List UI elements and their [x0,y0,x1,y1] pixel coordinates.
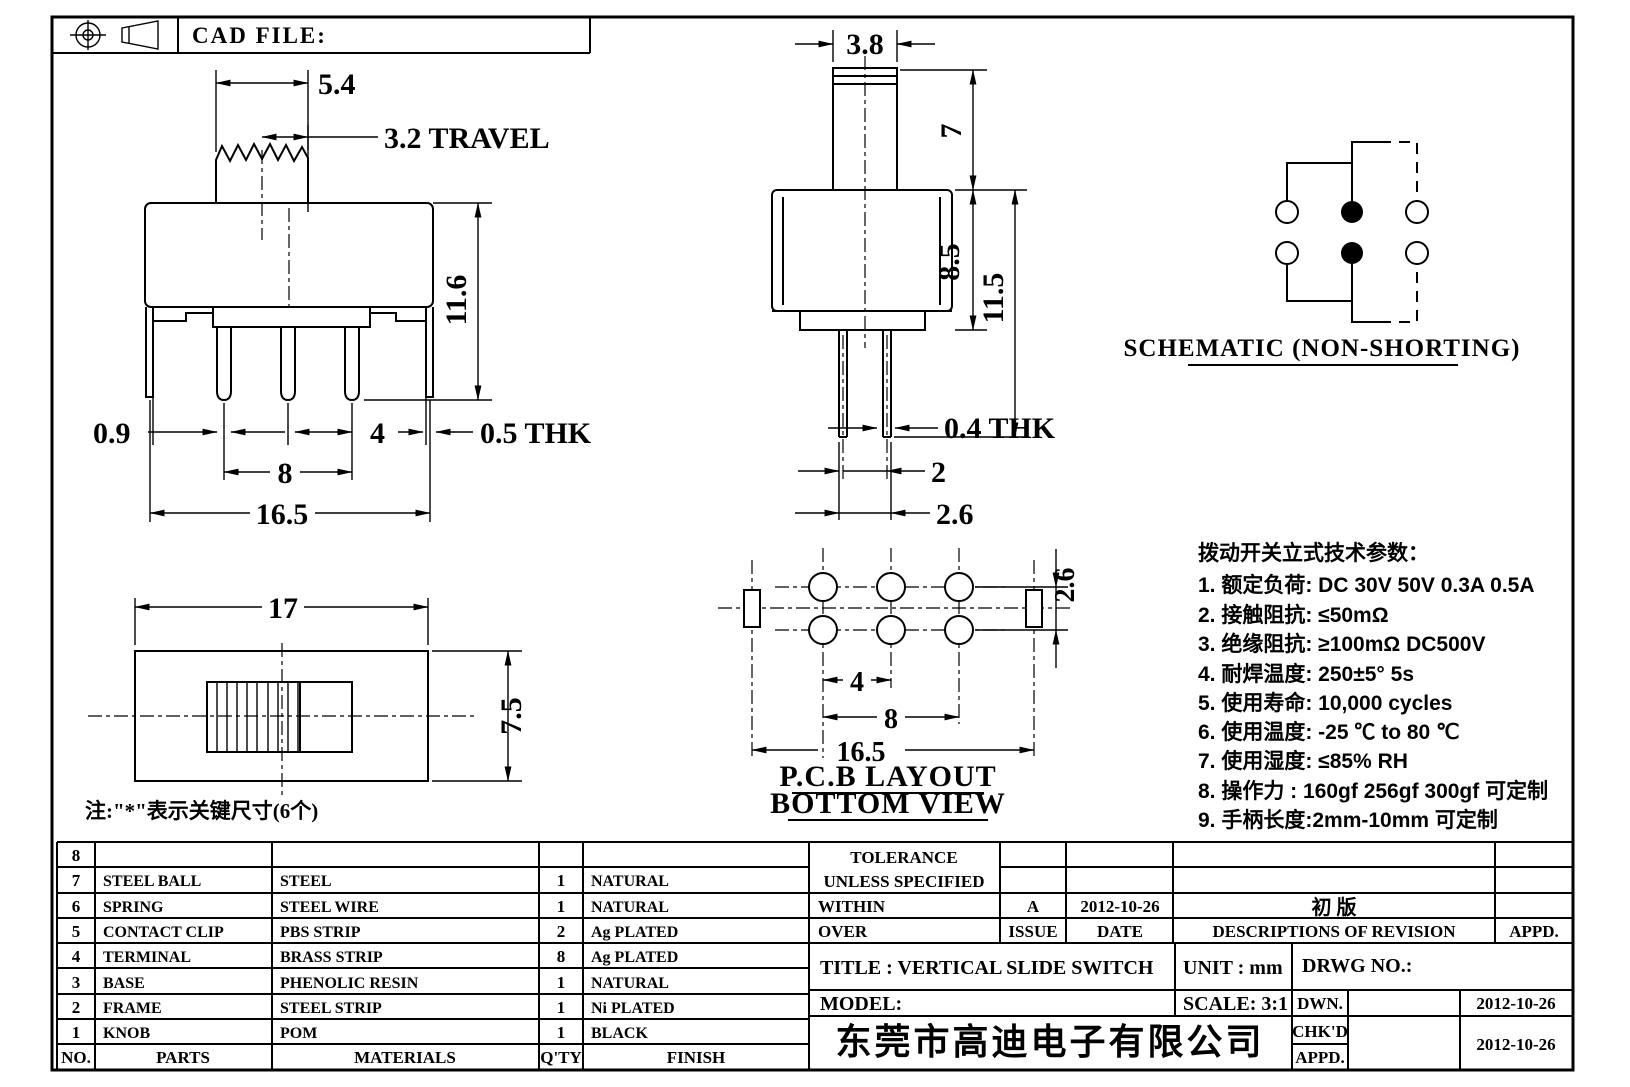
side-view [772,56,952,482]
part-finish: Ni PLATED [591,1000,675,1017]
dim-0-5-thk: 0.5 THK [480,417,592,450]
part-no: 7 [72,871,81,890]
part-qty: 1 [557,871,566,890]
spec-item-7: 7. 使用湿度: ≤85% RH [1198,749,1408,773]
dim-0-4-thk: 0.4 THK [944,412,1056,445]
top-view [88,643,478,795]
side-view-dimensions: 3.8 7 8.5 11.5 0.4 THK 2 2.6 [795,28,1056,531]
dim-17: 17 [268,592,298,625]
spec-item-8: 8. 操作力 : 160gf 256gf 300gf 可定制 [1198,779,1548,803]
appd-label: APPD. [1295,1048,1345,1067]
chkd-label: CHK'D [1292,1022,1348,1041]
part-qty: 2 [557,922,566,941]
part-qty: 8 [557,947,566,966]
part-material: POM [280,1025,317,1042]
spec-item-5: 5. 使用寿命: 10,000 cycles [1198,691,1452,715]
part-name: KNOB [103,1025,150,1042]
spec-item-9: 9. 手柄长度:2mm-10mm 可定制 [1198,808,1498,832]
part-qty: 1 [557,897,566,916]
spec-item-2: 2. 接触阻抗: ≤50mΩ [1198,603,1389,627]
dim-7-5: 7.5 [495,697,528,735]
part-qty: 1 [557,1023,566,1042]
col-header-materials: MATERIALS [354,1048,456,1067]
date-header: DATE [1097,922,1143,941]
appd-column-header: APPD. [1509,922,1559,941]
part-finish: Ag PLATED [591,949,678,966]
part-finish: NATURAL [591,975,669,992]
revision-description-value: 初 版 [1312,895,1357,919]
over-label: OVER [818,922,868,941]
tolerance-line1: TOLERANCE [850,848,957,867]
part-finish: NATURAL [591,873,669,890]
col-header-parts: PARTS [156,1048,210,1067]
part-finish: NATURAL [591,899,669,916]
projection-symbol-icon [70,20,158,50]
within-label: WITHIN [818,897,886,916]
part-material: STEEL WIRE [280,899,379,916]
scale-value: SCALE: 3:1 [1183,993,1288,1015]
unit-value: UNIT : mm [1183,957,1283,979]
part-qty: 1 [557,973,566,992]
dim-0-9: 0.9 [93,417,131,450]
col-header-finish: FINISH [667,1048,726,1067]
part-no: 4 [72,947,81,966]
dim-11-6: 11.6 [440,275,473,326]
dim-16-5: 16.5 [256,498,309,531]
dim-4: 4 [370,417,385,450]
part-material: BRASS STRIP [280,949,383,966]
part-no: 6 [72,897,81,916]
dim-2: 2 [931,456,946,489]
part-name: STEEL BALL [103,873,201,890]
cad-file-label: CAD FILE: [192,23,327,48]
part-name: TERMINAL [103,949,191,966]
drawing-sheet: CAD FILE: 5.4 3.2 TRAVEL 11.6 [0,0,1630,1087]
part-no: 8 [72,846,81,865]
front-view-dimensions: 5.4 3.2 TRAVEL 11.6 0.9 4 0.5 THK 8 1 [93,68,592,531]
part-no: 1 [72,1023,81,1042]
company-name: 东莞市高迪电子有限公司 [835,1021,1264,1062]
pcb-dim-4: 4 [850,667,864,698]
drawing-title: TITLE : VERTICAL SLIDE SWITCH [820,957,1154,979]
col-header-no: NO. [61,1048,91,1067]
dim-3-8: 3.8 [846,28,884,61]
dwn-label: DWN. [1297,994,1343,1013]
part-name: CONTACT CLIP [103,924,224,941]
dwn-date: 2012-10-26 [1476,994,1555,1013]
pcb-dim-8: 8 [884,704,898,735]
chk-appd-date: 2012-10-26 [1476,1035,1555,1054]
part-name: SPRING [103,899,164,916]
spec-item-3: 3. 绝缘阻抗: ≥100mΩ DC500V [1198,632,1485,656]
schematic-view: SCHEMATIC (NON-SHORTING) [1124,142,1521,365]
dim-8: 8 [278,457,293,490]
dim-8-5: 8.5 [933,243,966,281]
part-material: PBS STRIP [280,924,361,941]
schematic-label: SCHEMATIC (NON-SHORTING) [1124,335,1521,362]
part-qty: 1 [557,998,566,1017]
key-dimension-note: 注:"*"表示关键尺寸(6个) [85,799,318,823]
part-material: STEEL STRIP [280,1000,382,1017]
drwg-no-label: DRWG NO.: [1302,955,1412,977]
part-no: 3 [72,973,81,992]
revision-date-value: 2012-10-26 [1080,897,1159,916]
dim-11-5: 11.5 [977,273,1010,324]
pcb-dim-2-6: 2.6 [1050,568,1081,603]
descriptions-header: DESCRIPTIONS OF REVISION [1212,922,1456,941]
part-no: 5 [72,922,81,941]
spec-item-4: 4. 耐焊温度: 250±5° 5s [1198,662,1414,686]
part-finish: BLACK [591,1025,648,1042]
front-view [145,144,433,400]
tolerance-line2: UNLESS SPECIFIED [823,872,984,891]
dim-2-6: 2.6 [936,498,974,531]
tech-specs: 拨动开关立式技术参数： 1. 额定负荷: DC 30V 50V 0.3A 0.5… [1198,541,1548,832]
title-block: TOLERANCE UNLESS SPECIFIED WITHIN OVER A… [809,842,1573,1070]
part-no: 2 [72,998,81,1017]
model-label: MODEL: [820,993,902,1015]
issue-header: ISSUE [1008,922,1057,941]
part-name: FRAME [103,1000,162,1017]
revision-issue-value: A [1027,897,1040,916]
dim-7: 7 [935,124,968,139]
col-header-qty: Q'TY [540,1048,582,1067]
part-name: BASE [103,975,145,992]
specs-title: 拨动开关立式技术参数： [1198,541,1429,565]
part-finish: Ag PLATED [591,924,678,941]
dim-5-4: 5.4 [318,68,356,101]
part-material: STEEL [280,873,332,890]
dim-travel: 3.2 TRAVEL [384,122,550,155]
spec-item-1: 1. 额定负荷: DC 30V 50V 0.3A 0.5A [1198,573,1535,597]
pcb-label-line2: BOTTOM VIEW [770,787,1006,820]
part-material: PHENOLIC RESIN [280,975,419,992]
drawing-canvas: CAD FILE: 5.4 3.2 TRAVEL 11.6 [0,0,1630,1087]
spec-item-6: 6. 使用温度: -25 ℃ to 80 ℃ [1198,720,1460,744]
